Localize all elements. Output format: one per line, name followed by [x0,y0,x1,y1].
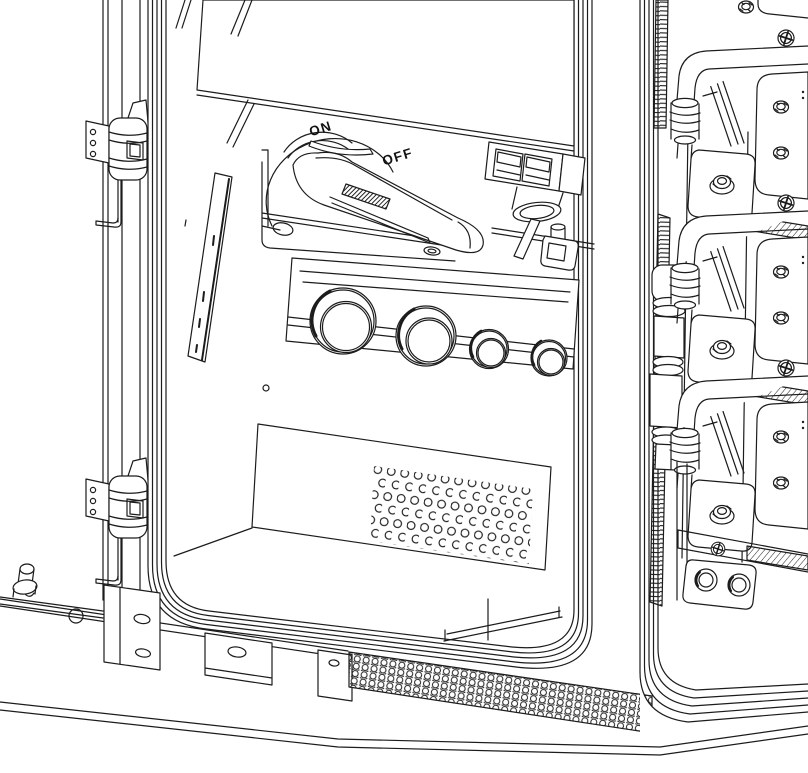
mounting-plate-left [205,633,272,685]
cabinet-line-drawing: ON OFF [0,0,808,773]
right-compartment [640,0,808,773]
side-bracket-plate [185,173,232,362]
mounting-plate-right [318,650,352,701]
ribbed-strip-upper [654,0,668,128]
door-bolt [12,564,38,597]
switch-off-label: OFF [380,145,415,169]
panel-hole [263,385,269,391]
sill-hole [69,609,83,623]
open-door-edge [0,0,191,618]
technical-drawing-svg: ON OFF [0,0,808,773]
cable-gland-2 [396,306,456,366]
cable-gland-4 [531,340,567,376]
cable-gland-1 [310,288,376,354]
switch-on-label: ON [307,118,334,139]
door-hinge-bottom [86,458,148,585]
door-bottom-bracket [104,585,160,670]
vent-panel [252,424,551,570]
door-hinge-top [86,100,148,227]
mesh-grille [349,652,652,733]
cable-gland-3 [470,330,509,369]
top-cover-shelf [197,0,574,151]
module-plate-top [739,0,808,18]
cable-gland-tray [286,258,579,376]
